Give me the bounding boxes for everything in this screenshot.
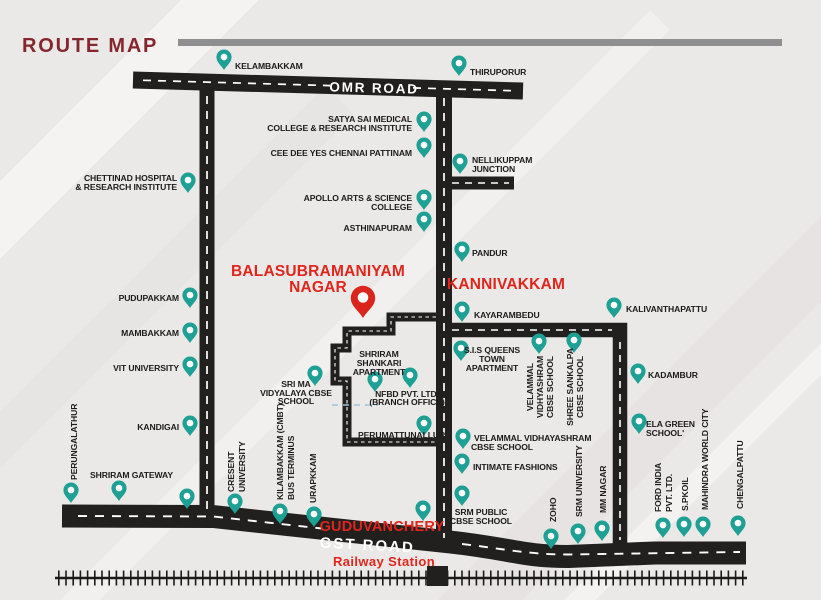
satya-sai-label: COLLEGE & RESEARCH INSTITUTE	[267, 123, 412, 133]
mm-nagar-label: MM NAGAR	[598, 465, 608, 513]
mambakkam-label: MAMBAKKAM	[121, 328, 179, 338]
balasubramaniyam-nagar-label: NAGAR	[289, 279, 347, 296]
ford-india-label: FORD INDIA	[653, 463, 663, 512]
apollo-label: COLLEGE	[371, 202, 412, 212]
srm-public-label: CBSE SCHOOL	[450, 516, 512, 526]
shriram-gateway-label: SHRIRAM GATEWAY	[90, 470, 173, 480]
thiruporur-label: THIRUPORUR	[470, 67, 527, 77]
route-map-page: ROUTE MAP OMR ROAD GST ROAD Railway Stat…	[0, 0, 821, 600]
intimate-fashions-label: INTIMATE FASHIONS	[473, 462, 558, 472]
vit-university-label: VIT UNIVERSITY	[113, 363, 179, 373]
sis-queens-label: APARTMENT	[466, 363, 519, 373]
nellikuppam-label: JUNCTION	[472, 164, 515, 174]
balasubramaniyam-nagar-label: BALASUBRAMANIYAM	[231, 263, 405, 280]
header-divider-bar	[178, 39, 782, 46]
ford-india-label: PVT. LTD.	[664, 474, 674, 512]
velammal-vidhayashram-label: CBSE SCHOOL	[471, 442, 533, 452]
kadambur-label: KADAMBUR	[648, 370, 699, 380]
kalivanthapattu-label: KALIVANTHAPATTU	[626, 304, 707, 314]
velammal-vidhyashram-label: VELAMMAL	[525, 363, 535, 411]
shree-sankalpa-label: CBSE SCHOOL	[575, 356, 585, 418]
shree-sankalpa-label: SHREE SANKALPA	[565, 348, 575, 426]
s-pkoil-label: S.PKOIL	[680, 477, 690, 511]
ela-green-label: SCHOOL'	[646, 428, 684, 438]
kilambakkam-label: BUS TERMINUS	[286, 435, 296, 500]
cresent-university-label: UNIVERSITY	[237, 441, 247, 492]
kelambakkam-label: KELAMBAKKAM	[235, 61, 303, 71]
omr-road-label: OMR ROAD	[329, 79, 419, 96]
perumattunallur-label: PERUMATTUNALLUR	[358, 430, 446, 440]
urapkkam-label: URAPKKAM	[308, 454, 318, 503]
cresent-university-label: CRESENT	[226, 451, 236, 492]
page-title: ROUTE MAP	[22, 35, 158, 57]
kandigai-label: KANDIGAI	[137, 422, 179, 432]
pudupakkam-label: PUDUPAKKAM	[119, 293, 179, 303]
nfbd-label: (BRANCH OFFICE)	[369, 397, 445, 407]
asthinapuram-label: ASTHINAPURAM	[343, 223, 412, 233]
perungalathur-label: PERUNGALATHUR	[69, 403, 79, 480]
railway-station-label: Railway Station	[333, 554, 435, 569]
srm-university-label: SRM UNIVERSITY	[574, 445, 584, 517]
velammal-vidhyashram-label: CBSE SCHOOL	[545, 356, 555, 418]
kayarambedu-label: KAYARAMBEDU	[474, 310, 540, 320]
cee-dee-yes-label: CEE DEE YES CHENNAI PATTINAM	[271, 148, 412, 158]
pandur-label: PANDUR	[472, 248, 508, 258]
kannivakkam-label: KANNIVAKKAM	[447, 276, 565, 293]
guduvanchery-label: GUDUVANCHERY	[320, 519, 445, 535]
zoho-label: ZOHO	[548, 497, 558, 522]
route-map-canvas: ROUTE MAP OMR ROAD GST ROAD Railway Stat…	[0, 0, 821, 600]
chettinad-label: & RESEARCH INSTITUTE	[75, 182, 177, 192]
mahindra-world-city-label: MAHINDRA WORLD CITY	[700, 408, 710, 510]
velammal-vidhyashram-label: VIDHYASHRAM	[535, 356, 545, 418]
chengalpattu-label: CHENGALPATTU	[735, 440, 745, 509]
railway-station-marker	[427, 566, 448, 586]
shriram-shankari-label: APARTMENT	[353, 367, 406, 377]
kilambakkam-label: KILAMBAKKAM (CMBT)	[275, 403, 285, 500]
